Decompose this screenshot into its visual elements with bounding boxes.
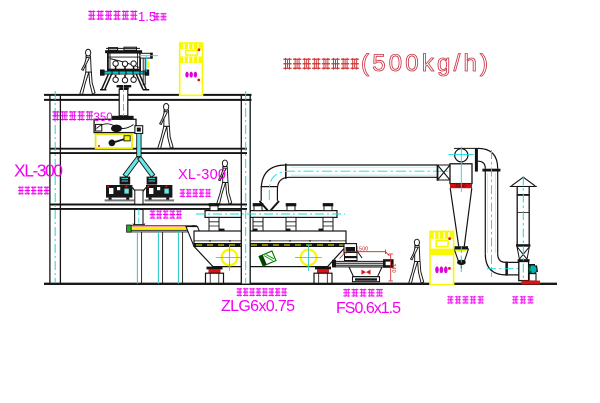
svg-text:F900: F900 xyxy=(456,184,467,189)
svg-text:XL-300: XL-300 xyxy=(14,161,63,181)
svg-text:340: 340 xyxy=(390,264,396,273)
svg-text:XL-300: XL-300 xyxy=(178,167,226,183)
svg-text:1500: 1500 xyxy=(356,246,368,252)
svg-text:FS0.6x1.5: FS0.6x1.5 xyxy=(336,300,401,317)
svg-text:ZLG6x0.75: ZLG6x0.75 xyxy=(221,298,295,315)
svg-text:350: 350 xyxy=(94,112,113,124)
svg-text:(500kg/h): (500kg/h) xyxy=(361,50,488,77)
